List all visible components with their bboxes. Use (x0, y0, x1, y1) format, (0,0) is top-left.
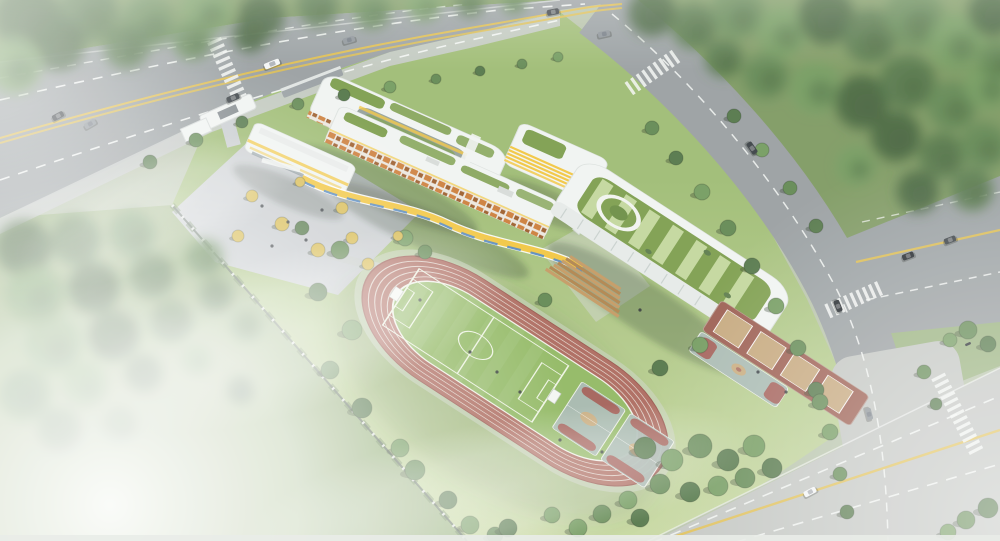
campus-aerial-rendering: Aerial perspective rendering of a school… (0, 0, 1000, 541)
rendering-canvas: Aerial perspective rendering of a school… (0, 0, 1000, 541)
fog-overlay (0, 0, 1000, 541)
bottom-edge-strip (0, 535, 1000, 541)
